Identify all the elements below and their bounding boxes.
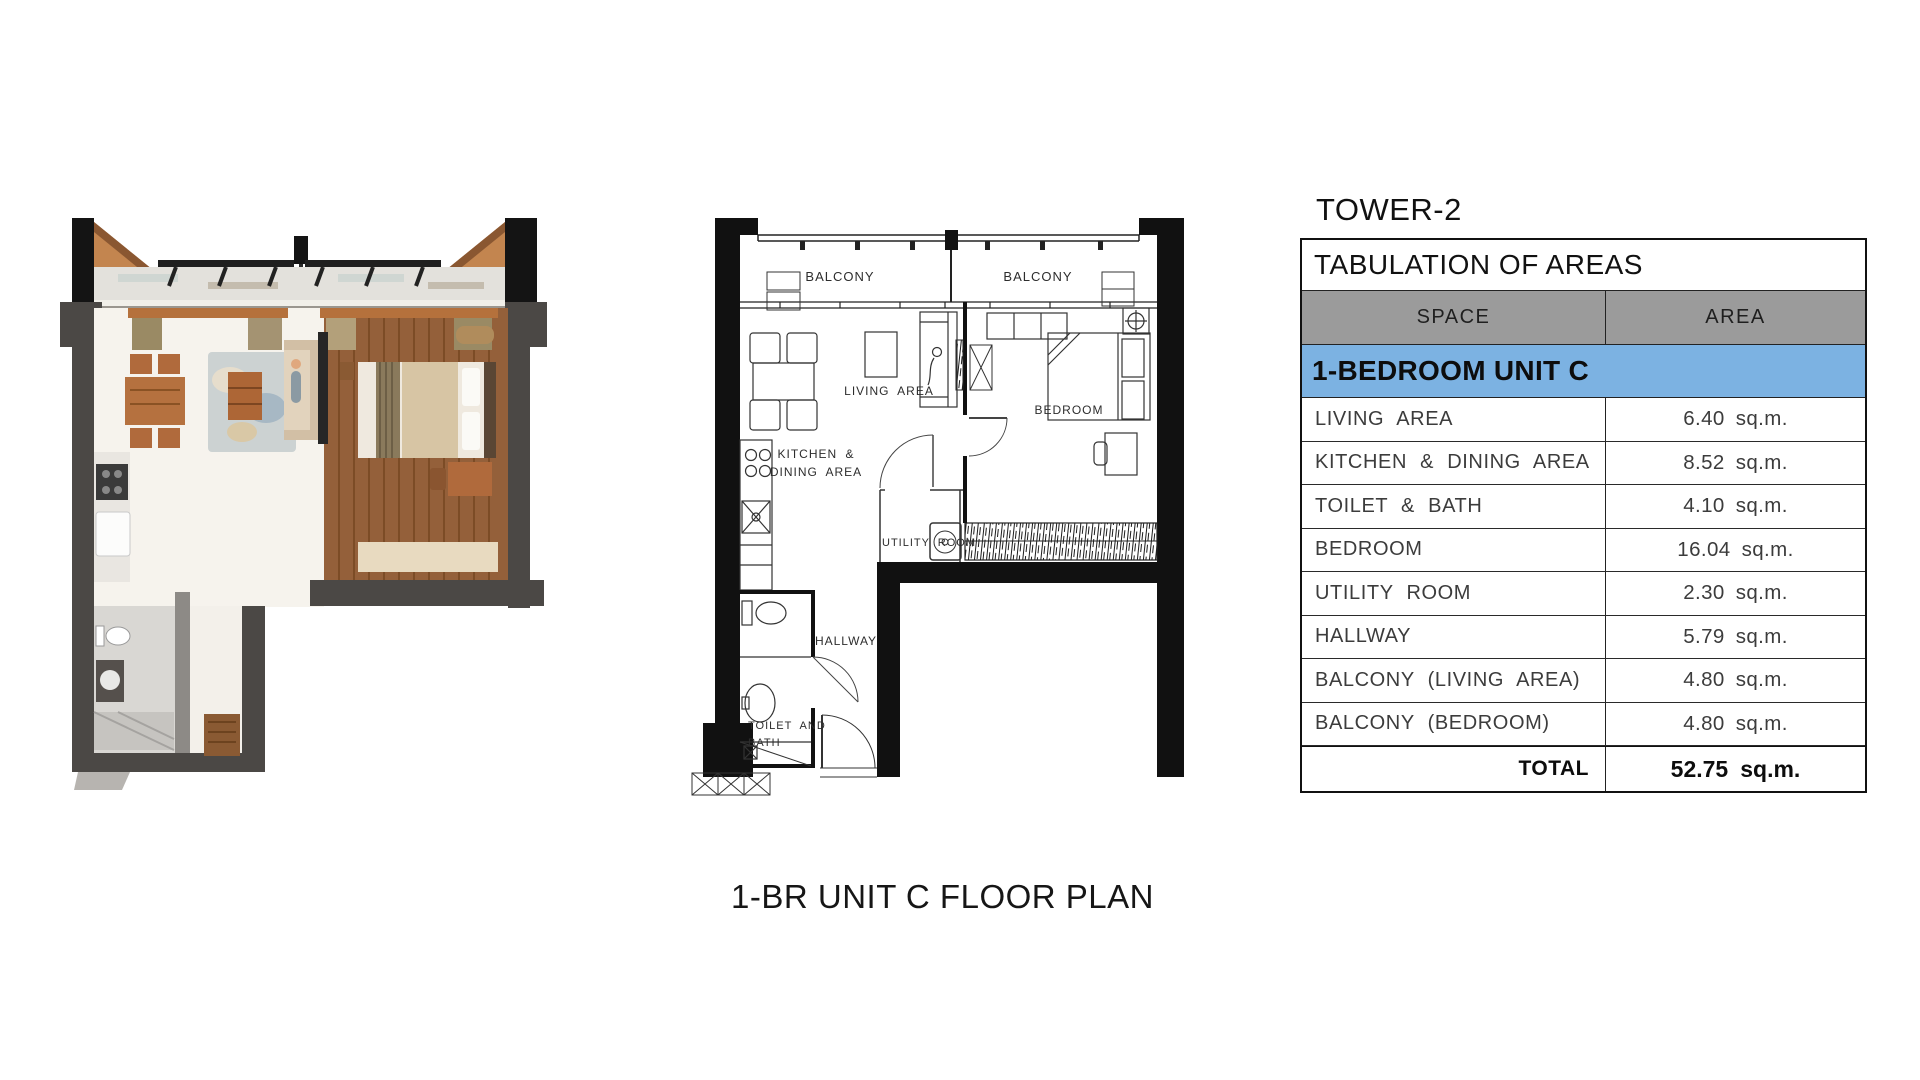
- label-toilet-1: TOILET AND: [748, 720, 826, 732]
- ac-unit-plan: [1123, 308, 1149, 334]
- table-row: BALCONY (LIVING AREA) 4.80sq.m.: [1302, 659, 1865, 703]
- center-post: [294, 236, 308, 264]
- tv-wall: [318, 332, 328, 444]
- table-total-row: TOTAL 52.75sq.m.: [1302, 746, 1865, 791]
- desk-plan: [1094, 433, 1137, 475]
- bed: [340, 362, 496, 458]
- dining-set-plan: [750, 333, 817, 430]
- label-toilet-2: BATH: [748, 737, 781, 749]
- wardrobe-hatch: [965, 523, 1157, 560]
- kitchen-counter-plan: [740, 440, 772, 590]
- total-value: 52.75sq.m.: [1606, 747, 1865, 791]
- label-living-area: LIVING AREA: [844, 384, 934, 398]
- entry-door: [820, 715, 877, 777]
- wall-right: [508, 308, 530, 608]
- col-header-space: SPACE: [1302, 291, 1606, 344]
- col-header-area: AREA: [1606, 291, 1865, 344]
- plan-caption: 1-BR UNIT C FLOOR PLAN: [690, 878, 1195, 916]
- bench: [358, 542, 498, 572]
- label-kitchen-1: KITCHEN &: [777, 447, 854, 461]
- wall-corridor-right: [242, 606, 265, 772]
- table-title: TABULATION OF AREAS: [1302, 240, 1865, 291]
- table-row: LIVING AREA 6.40sq.m.: [1302, 398, 1865, 442]
- bedroom-door: [969, 418, 1007, 456]
- floor-plan-sheet: BALCONY BALCONY LIVING AREA BEDROOM KITC…: [0, 0, 1920, 1080]
- sofa: [284, 340, 318, 440]
- table-row: BALCONY (BEDROOM) 4.80sq.m.: [1302, 703, 1865, 747]
- wall-left: [72, 308, 94, 772]
- coffee-table-plan: [865, 332, 897, 377]
- desk: [448, 462, 492, 496]
- wall-post-top-left: [715, 218, 758, 302]
- wall-post-top-right: [1139, 218, 1184, 302]
- label-kitchen-2: DINING AREA: [770, 465, 862, 479]
- balcony-rail-left: [158, 260, 294, 267]
- wall-left: [715, 302, 740, 723]
- tower-title: TOWER-2: [1316, 192, 1462, 228]
- label-utility-room: UTILITY ROOM: [882, 537, 976, 549]
- wall-mid-horizontal: [877, 562, 1157, 583]
- kitchen-counter: [94, 452, 130, 582]
- table-row: BEDROOM 16.04sq.m.: [1302, 529, 1865, 573]
- doormat: [204, 714, 240, 756]
- table-section-row: 1-BEDROOM UNIT C: [1302, 345, 1865, 398]
- wall-hall-vertical: [877, 583, 900, 777]
- entry-step: [74, 772, 130, 790]
- areas-table: TABULATION OF AREAS SPACE AREA 1-BEDROOM…: [1300, 238, 1867, 793]
- render-3d-unit: [58, 212, 550, 792]
- balcony-rail-right: [305, 260, 441, 267]
- table-row: TOILET & BATH 4.10sq.m.: [1302, 485, 1865, 529]
- desk-chair: [430, 468, 446, 490]
- table-row: KITCHEN & DINING AREA 8.52sq.m.: [1302, 442, 1865, 486]
- total-label: TOTAL: [1302, 747, 1606, 791]
- label-balcony-right: BALCONY: [1003, 269, 1072, 284]
- table-header-row: SPACE AREA: [1302, 291, 1865, 345]
- tv-wall-plan: [963, 302, 967, 415]
- bath-corridor-wall: [175, 592, 190, 753]
- label-balcony-left: BALCONY: [805, 269, 874, 284]
- table-row: HALLWAY 5.79sq.m.: [1302, 616, 1865, 660]
- plan-2d-unit-c: BALCONY BALCONY LIVING AREA BEDROOM KITC…: [690, 205, 1195, 805]
- label-bedroom: BEDROOM: [1034, 403, 1103, 417]
- wall-block-bottom-left: [703, 723, 753, 777]
- coffee-table: [228, 372, 262, 420]
- table-row: UTILITY ROOM 2.30sq.m.: [1302, 572, 1865, 616]
- wall-bedroom-bottom: [310, 580, 544, 606]
- balcony-divider-cap: [945, 230, 958, 250]
- wall-right: [1157, 302, 1184, 777]
- label-hallway: HALLWAY: [815, 634, 877, 648]
